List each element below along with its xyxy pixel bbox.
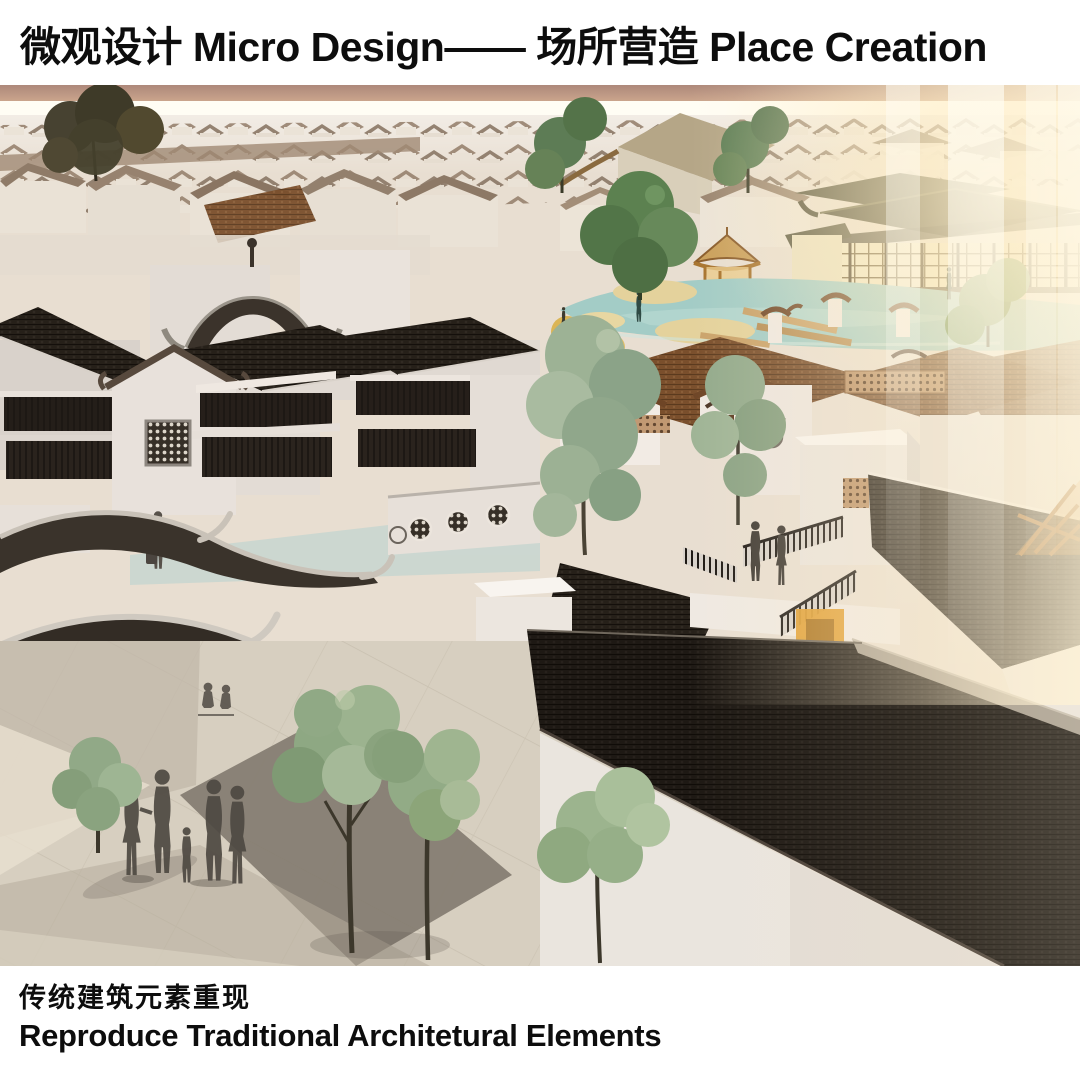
architectural-render [0, 85, 1080, 966]
caption-english: Reproduce Traditional Architetural Eleme… [19, 1018, 1080, 1054]
board-caption: 传统建筑元素重现 Reproduce Traditional Architetu… [0, 966, 1080, 1053]
caption-chinese: 传统建筑元素重现 [19, 984, 1080, 1014]
presentation-board: 微观设计 Micro Design—— 场所营造 Place Creation [0, 0, 1080, 1079]
page-title: 微观设计 Micro Design—— 场所营造 Place Creation [20, 13, 987, 73]
board-header: 微观设计 Micro Design—— 场所营造 Place Creation [0, 0, 1080, 85]
light-streaks [690, 85, 1080, 966]
render-scene [0, 85, 1080, 966]
